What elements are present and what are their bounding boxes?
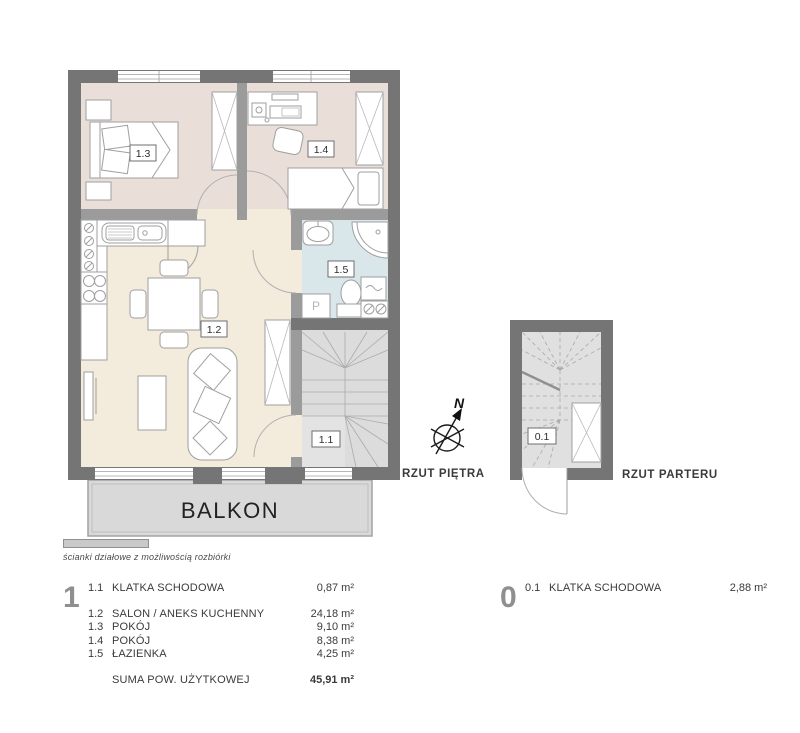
window [222,468,265,479]
floor0-area-table: 0 0.1 KLATKA SCHODOWA 2,88 m² [500,582,767,596]
floor-plan-page: BALKON [0,0,800,733]
nightstand-icon [86,100,111,120]
room-name: SALON / ANEKS KUCHENNY [112,608,280,622]
duct-icon [81,220,97,272]
ground-floor-plan: 0.1 RZUT PARTERU [510,320,718,514]
balcony: BALKON [88,480,372,536]
stove-icon [81,272,107,304]
room-label-text: 0.1 [535,431,550,443]
room-code: 1.4 [88,635,112,649]
upper-plan-title: RZUT PIĘTRA [402,468,485,480]
facade-pier [265,467,302,484]
partition-note-text: ścianki działowe z możliwością rozbiórki [63,552,231,562]
floor-number: 1 [63,583,80,613]
sofa-icon [188,348,237,460]
floor1-area-table: 1 1.1 KLATKA SCHODOWA 0,87 m² 1.2 SALON … [63,582,354,687]
room-area: 2,88 m² [693,582,767,596]
room-area: 9,10 m² [280,621,354,635]
room-name: POKÓJ [112,635,280,649]
room-label: 1.1 [312,431,340,447]
kitchen-sink-icon [102,223,166,243]
room-label-text: 1.1 [319,434,334,446]
table-row: 0.1 KLATKA SCHODOWA 2,88 m² [525,582,767,596]
room-label-text: 1.5 [334,264,349,276]
table-total-row: SUMA POW. UŻYTKOWEJ 45,91 m² [88,674,354,688]
window [118,71,200,82]
washer-spot-box: P [302,294,330,318]
room-label: 1.3 [130,145,156,161]
table-row: 1.4 POKÓJ 8,38 m² [88,635,354,649]
wardrobe-icon [265,320,290,405]
room-area: 0,87 m² [280,582,354,596]
coffee-table-icon [138,376,166,430]
wardrobe-icon [212,92,237,170]
north-label: N [454,395,465,411]
table-row: 1.2 SALON / ANEKS KUCHENNY 24,18 m² [88,608,354,622]
room-label-text: 1.2 [207,324,222,336]
room-label: 1.4 [308,141,334,157]
wardrobe-icon [356,92,383,165]
room-area: 4,25 m² [280,648,354,662]
table-row: 1.3 POKÓJ 9,10 m² [88,621,354,635]
north-arrow-icon: N [431,395,465,454]
window [305,468,352,479]
room-code: 1.3 [88,621,112,635]
total-area: 45,91 m² [280,674,354,688]
balcony-label: BALKON [181,498,279,523]
partition-wall-swatch [63,539,149,548]
table-row: 1.1 KLATKA SCHODOWA 0,87 m² [88,582,354,596]
wardrobe-icon [572,403,601,462]
room-label: 1.5 [328,261,354,277]
facade-pier [193,467,222,484]
table-spacer [88,596,354,608]
floor-number: 0 [500,583,517,613]
washbasin-icon [303,221,333,245]
ground-plan-title: RZUT PARTERU [622,469,718,481]
floor-plan-drawing: BALKON [0,0,800,560]
room-code: 1.2 [88,608,112,622]
room-name: ŁAZIENKA [112,648,280,662]
upper-floor-plan: BALKON [68,70,485,536]
nightstand-icon [86,182,111,200]
room-name: KLATKA SCHODOWA [112,582,280,596]
total-label: SUMA POW. UŻYTKOWEJ [112,674,280,688]
table-row: 1.5 ŁAZIENKA 4,25 m² [88,648,354,662]
window [95,468,193,479]
room-code: 1.1 [88,582,112,596]
room-label: 1.2 [201,321,227,337]
table-spacer [88,662,354,674]
office-chair-icon [272,126,304,155]
room-label-text: 1.4 [314,144,329,156]
partition-legend: ścianki działowe z możliwością rozbiórki [63,539,231,562]
room-code: 1.5 [88,648,112,662]
room-label: 0.1 [528,428,556,444]
washing-machine-icon [361,277,386,300]
room-name: POKÓJ [112,621,280,635]
desk-icon [248,92,317,125]
single-bed-icon [288,168,383,209]
washer-spot-label: P [312,299,320,313]
total-code-spacer [88,674,112,688]
window [273,71,350,82]
room-area: 24,18 m² [280,608,354,622]
room-area: 8,38 m² [280,635,354,649]
room-code: 0.1 [525,582,549,596]
duct-icon [361,301,388,318]
door-opening [522,468,567,480]
room-name: KLATKA SCHODOWA [549,582,693,596]
room-label-text: 1.3 [136,148,151,160]
